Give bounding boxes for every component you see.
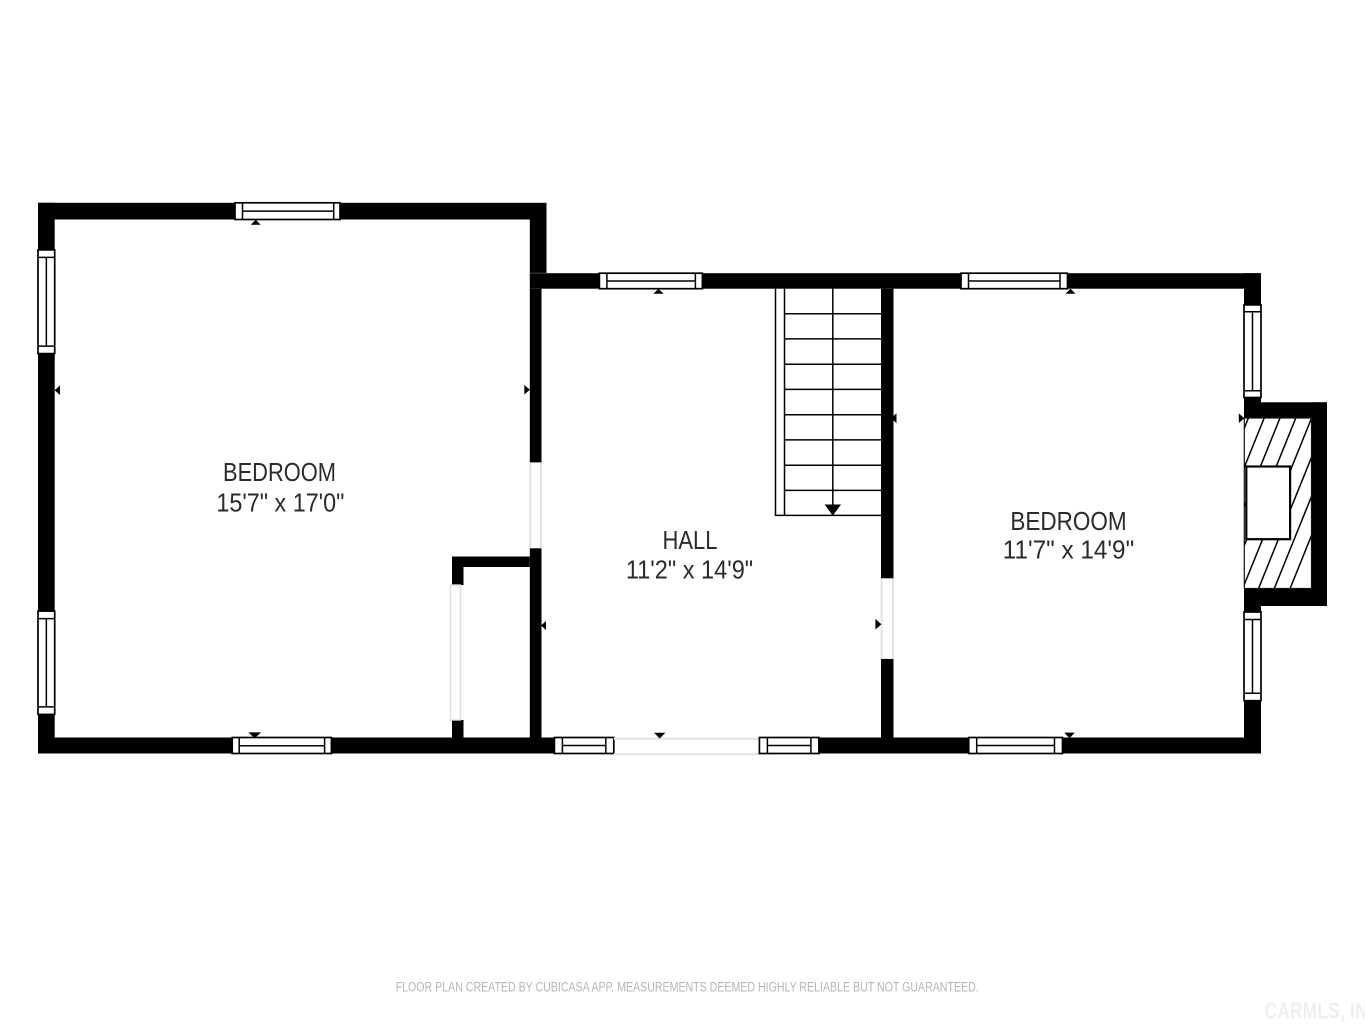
- svg-text:11'7" x 14'9": 11'7" x 14'9": [1003, 534, 1134, 564]
- svg-text:11'2" x 14'9": 11'2" x 14'9": [626, 554, 753, 584]
- svg-text:FLOOR PLAN CREATED BY CUBICASA: FLOOR PLAN CREATED BY CUBICASA APP. MEAS…: [396, 980, 979, 995]
- svg-text:15'7" x 17'0": 15'7" x 17'0": [216, 488, 344, 518]
- svg-text:BEDROOM: BEDROOM: [1010, 506, 1126, 536]
- svg-text:BEDROOM: BEDROOM: [223, 457, 336, 487]
- svg-text:CARMLS, INC: CARMLS, INC: [1265, 998, 1365, 1024]
- svg-text:HALL: HALL: [663, 525, 718, 555]
